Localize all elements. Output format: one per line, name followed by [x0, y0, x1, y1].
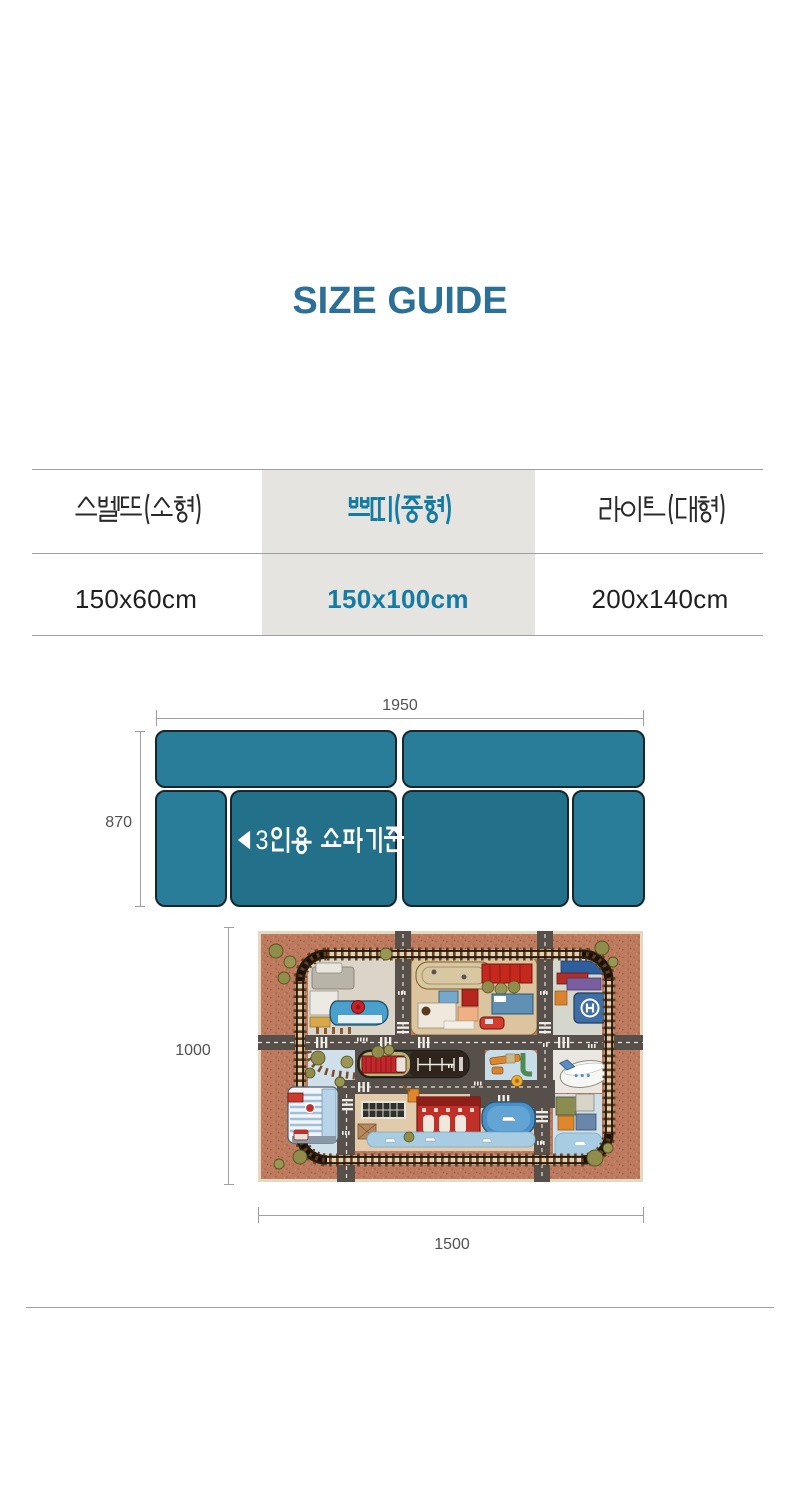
svg-text:3: 3 [255, 826, 268, 856]
